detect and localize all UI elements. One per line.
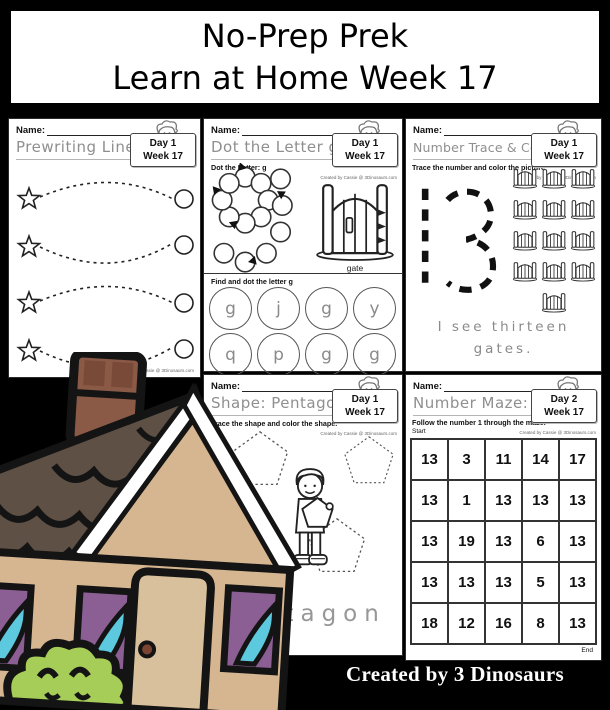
name-blank-line — [444, 381, 531, 392]
name-field: Name: — [211, 125, 332, 136]
maze-cell: 17 — [559, 439, 596, 480]
maze-cell: 18 — [411, 603, 448, 644]
maze-cell: 13 — [522, 480, 559, 521]
name-label: Name: — [16, 125, 45, 136]
badge-week: Week 17 — [532, 150, 596, 163]
small-credit: Created by Cassie @ 3Dinosaurs.com — [519, 430, 596, 435]
badge-week: Week 17 — [131, 150, 195, 163]
maze-cell: 11 — [485, 439, 522, 480]
dashed-pentagon — [342, 435, 396, 486]
name-label: Name: — [211, 125, 240, 136]
find-instruction: Find and dot the letter g — [211, 277, 293, 286]
day-week-badge: Day 1 Week 17 — [531, 133, 597, 167]
maze-cell: 13 — [411, 562, 448, 603]
worksheet-dot-letter-g: Name: Dot the Letter g Day 1 Week 17 Dot… — [203, 118, 403, 372]
maze-cell: 13 — [448, 562, 485, 603]
door — [127, 571, 211, 710]
badge-day: Day 2 — [532, 393, 596, 406]
letter-circle: g — [209, 287, 252, 330]
door-knob — [140, 642, 155, 657]
instruction-text: Follow the number 1 through the maze. — [412, 418, 546, 427]
badge-week: Week 17 — [532, 406, 596, 419]
worksheet-number-trace-color: Name: Number Trace & Color: 13 Day 1 Wee… — [405, 118, 602, 372]
trace-row — [19, 182, 194, 208]
maze-cell: 8 — [522, 603, 559, 644]
promo-graphic: No-Prep Prek Learn at Home Week 17 Name:… — [0, 0, 610, 710]
title-line-1: No-Prep Prek — [202, 15, 408, 57]
day-week-badge: Day 2 Week 17 — [531, 389, 597, 423]
maze-cell: 13 — [559, 562, 596, 603]
maze-cell: 13 — [485, 521, 522, 562]
trace-sentence-line2: gates. — [406, 341, 601, 357]
maze-cell: 6 — [522, 521, 559, 562]
maze-cell: 3 — [448, 439, 485, 480]
name-field: Name: — [413, 381, 531, 392]
maze-start-label: Start — [412, 428, 426, 435]
letter-circle: g — [353, 333, 396, 376]
maze-cell: 19 — [448, 521, 485, 562]
maze-cell: 13 — [411, 439, 448, 480]
trace-sentence-line1: I see thirteen — [406, 319, 601, 335]
maze-cell: 5 — [522, 562, 559, 603]
number-maze-grid: 13 3 11 14 17 13 1 13 13 13 13 19 13 6 1… — [410, 438, 597, 645]
title-banner: No-Prep Prek Learn at Home Week 17 — [7, 7, 603, 107]
maze-end-label: End — [581, 647, 593, 654]
gate-label: gate — [312, 263, 398, 273]
badge-week: Week 17 — [333, 150, 397, 163]
badge-day: Day 1 — [532, 137, 596, 150]
house-illustration — [0, 352, 323, 710]
day-week-badge: Day 1 Week 17 — [130, 133, 196, 167]
worksheet-title: Prewriting Lines — [16, 138, 143, 156]
section-divider — [204, 273, 402, 274]
maze-cell: 13 — [411, 521, 448, 562]
footer-credit: Created by 3 Dinosaurs — [346, 662, 564, 687]
maze-cell: 13 — [559, 603, 596, 644]
maze-cell: 13 — [485, 480, 522, 521]
badge-day: Day 1 — [333, 137, 397, 150]
name-field: Name: — [16, 125, 130, 136]
day-week-badge: Day 1 Week 17 — [332, 133, 398, 167]
maze-cell: 1 — [448, 480, 485, 521]
window — [220, 584, 283, 675]
name-blank-line — [242, 125, 332, 136]
maze-cell: 12 — [448, 603, 485, 644]
trace-row — [19, 286, 194, 312]
title-line-2: Learn at Home Week 17 — [112, 57, 497, 99]
thirteen-gates-grid — [510, 165, 598, 317]
name-label: Name: — [413, 125, 442, 136]
worksheet-number-maze: Name: Number Maze: 13 Day 2 Week 17 Foll… — [405, 374, 602, 661]
letter-circle: y — [353, 287, 396, 330]
maze-cell: 16 — [485, 603, 522, 644]
name-blank-line — [444, 125, 531, 136]
maze-cell: 13 — [485, 562, 522, 603]
letter-g-dot-art — [208, 163, 300, 278]
badge-day: Day 1 — [131, 137, 195, 150]
maze-cell: 13 — [559, 480, 596, 521]
worksheet-title: Dot the Letter g — [211, 138, 339, 156]
badge-day: Day 1 — [333, 393, 397, 406]
name-blank-line — [47, 125, 130, 136]
maze-cell: 13 — [411, 480, 448, 521]
gate-illustration — [312, 173, 398, 261]
dashed-number-13 — [412, 183, 506, 296]
trace-row — [19, 236, 194, 263]
letter-circle: j — [257, 287, 300, 330]
badge-week: Week 17 — [333, 406, 397, 419]
worksheet-prewriting-lines: Name: Prewriting Lines Day 1 Week 17 — [8, 118, 201, 378]
maze-cell: 14 — [522, 439, 559, 480]
letter-circle: g — [305, 287, 348, 330]
name-field: Name: — [413, 125, 531, 136]
maze-cell: 13 — [559, 521, 596, 562]
name-label: Name: — [413, 381, 442, 392]
day-week-badge: Day 1 Week 17 — [332, 389, 398, 423]
